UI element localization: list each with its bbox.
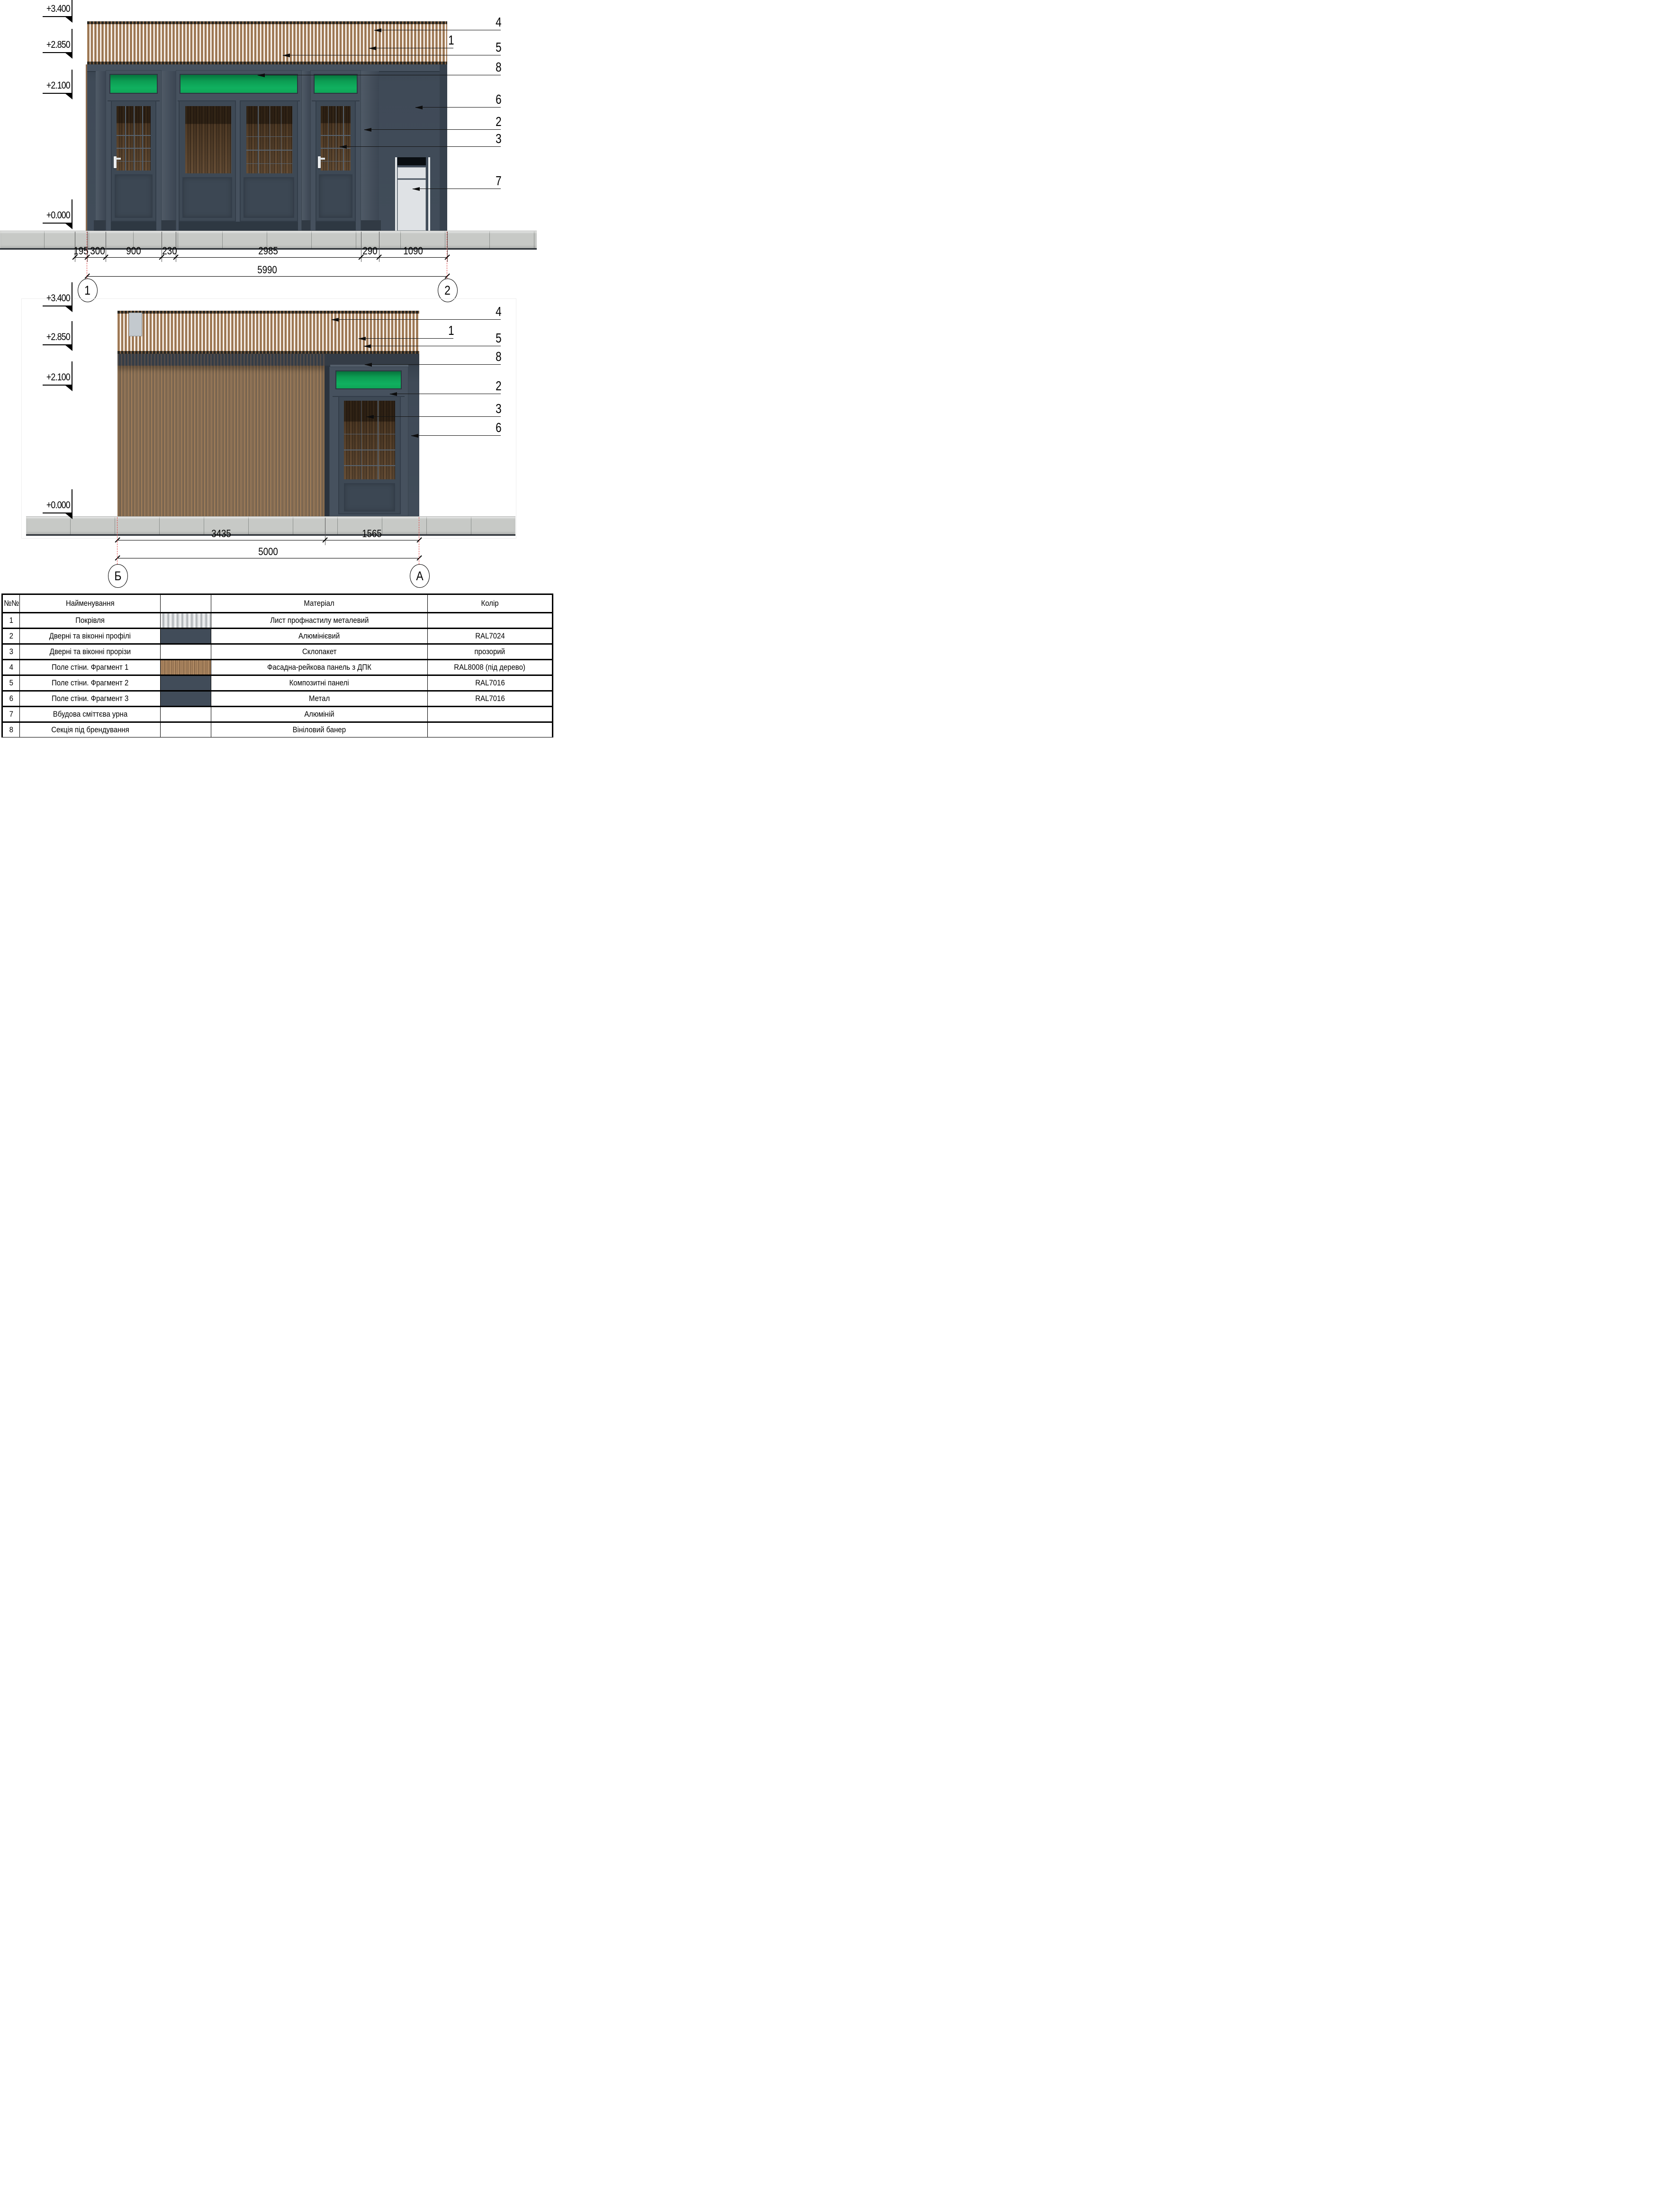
level-mark: +2.100 xyxy=(43,81,72,94)
dim-5000: 5000 xyxy=(258,547,278,557)
header-name: Найменування xyxy=(20,594,161,613)
level-mark: +2.100 xyxy=(43,372,72,386)
header-num: №№ xyxy=(2,594,20,613)
swatch-wood-slats xyxy=(161,660,211,674)
wood-slat-parapet xyxy=(87,21,447,64)
dim-230: 230 xyxy=(162,246,177,256)
pilaster xyxy=(162,71,176,231)
swatch-corrugated-metal xyxy=(161,613,211,628)
pilaster-base xyxy=(160,220,178,231)
branding-transom xyxy=(335,370,402,389)
level-mark: +2.850 xyxy=(43,332,72,345)
dim-300: 300 xyxy=(90,246,105,256)
pilaster xyxy=(96,71,106,231)
callout-5: 5 xyxy=(283,55,501,55)
materials-table: №№ Найменування Матеріал Колір 1 Покрівл… xyxy=(1,593,553,737)
door-kick-panel xyxy=(344,483,395,512)
level-mark: +0.000 xyxy=(43,500,72,513)
callout-4: 4 xyxy=(332,319,501,320)
storefront-threshold xyxy=(179,222,298,231)
elevation-front xyxy=(87,21,447,231)
table-row: 3 Дверні та віконні прорізи Склопакет пр… xyxy=(2,644,553,660)
swatch-dark-gray xyxy=(161,692,211,706)
door-handle xyxy=(114,156,117,168)
door-threshold xyxy=(111,222,156,231)
header-swatch xyxy=(161,594,211,613)
door-handle xyxy=(318,156,321,168)
axis-line-b xyxy=(117,517,117,564)
header-material: Матеріал xyxy=(211,594,428,613)
axis-line-a xyxy=(419,517,419,564)
callout-2: 2 xyxy=(364,129,501,130)
dim-3435: 3435 xyxy=(211,529,231,539)
swatch-dark-gray xyxy=(161,629,211,643)
dim-1565: 1565 xyxy=(362,529,382,539)
wall-right-shade xyxy=(440,64,447,231)
curb-line xyxy=(26,534,515,536)
roof-access-detail xyxy=(129,313,142,336)
table-row: 5 Поле стіни. Фрагмент 2 Композитні пане… xyxy=(2,675,553,691)
level-mark: +3.400 xyxy=(43,293,72,306)
wood-corner-sliver xyxy=(86,64,87,231)
axis-line-1 xyxy=(87,232,87,279)
storefront-kick-right xyxy=(244,177,294,218)
dim-chain xyxy=(75,257,447,258)
sidewalk xyxy=(26,516,515,535)
strip-slat-tint xyxy=(117,354,325,366)
elevation-side xyxy=(117,311,419,516)
callout-6: 6 xyxy=(415,107,501,108)
axis-bubble-b: Б xyxy=(108,564,128,588)
bin-slot xyxy=(397,157,426,165)
bin-upper-panel xyxy=(397,167,426,179)
dim-195: 195 xyxy=(73,246,88,256)
callout-7: 7 xyxy=(413,189,501,189)
swatch-dark-gray xyxy=(161,676,211,690)
door-glazing xyxy=(344,401,395,479)
dim-2985: 2985 xyxy=(258,246,278,256)
door-kick-panel xyxy=(115,174,153,218)
level-mark: +3.400 xyxy=(43,4,72,17)
pilaster xyxy=(361,71,379,231)
branding-transom xyxy=(109,74,158,94)
level-mark: +0.000 xyxy=(43,210,72,224)
door-glazing xyxy=(117,106,151,171)
callout-2: 2 xyxy=(390,394,501,394)
dim-900: 900 xyxy=(126,246,141,256)
callout-5: 5 xyxy=(364,346,501,346)
trash-bin xyxy=(395,156,430,231)
table-row: 1 Покрівля Лист профнастилу металевий xyxy=(2,613,553,629)
axis-line-2 xyxy=(447,232,447,279)
callout-3: 3 xyxy=(367,416,501,417)
callout-6: 6 xyxy=(411,435,501,436)
door-glazing xyxy=(321,106,351,171)
dim-290: 290 xyxy=(362,246,377,256)
door-kick-panel xyxy=(319,174,352,218)
callout-1: 1 xyxy=(369,48,453,48)
header-color: Колір xyxy=(428,594,553,613)
dim-total xyxy=(117,558,419,558)
dim-chain xyxy=(117,540,419,540)
storefront-glazing-right xyxy=(246,106,292,173)
door-threshold xyxy=(316,222,356,231)
table-header: №№ Найменування Матеріал Колір xyxy=(2,594,553,613)
pilaster-base xyxy=(359,220,381,231)
callout-1: 1 xyxy=(359,338,453,339)
wood-slat-parapet xyxy=(117,311,419,354)
table-row: 6 Поле стіни. Фрагмент 3 Метал RAL7016 xyxy=(2,691,553,707)
dim-5990: 5990 xyxy=(257,265,277,275)
table-row: 4 Поле стіни. Фрагмент 1 Фасадна-рейкова… xyxy=(2,660,553,675)
callout-8: 8 xyxy=(258,75,501,75)
drawing-sheet: +3.400 +2.850 +2.100 +0.000 4 1 5 8 6 2 … xyxy=(0,0,553,737)
table-row: 2 Дверні та віконні профілі Алюмінієвий … xyxy=(2,629,553,644)
storefront-glazing-left xyxy=(185,106,231,173)
branding-transom xyxy=(180,74,298,94)
level-mark: +2.850 xyxy=(43,40,72,53)
callout-8: 8 xyxy=(365,364,501,365)
table-row: 8 Секція під брендування Вініловий банер xyxy=(2,722,553,738)
dim-1090: 1090 xyxy=(403,246,423,256)
axis-bubble-a: А xyxy=(410,564,430,588)
callout-4: 4 xyxy=(374,30,501,30)
center-mullion xyxy=(236,100,240,222)
bin-lower-panel xyxy=(397,180,426,231)
branding-transom xyxy=(314,74,358,94)
slat-wall xyxy=(117,366,325,516)
dim-total xyxy=(87,276,447,277)
storefront-kick-left xyxy=(182,177,232,218)
table-row: 7 Вбудова сміттєва урна Алюміній xyxy=(2,707,553,722)
pilaster xyxy=(302,71,310,231)
callout-3: 3 xyxy=(340,146,501,147)
